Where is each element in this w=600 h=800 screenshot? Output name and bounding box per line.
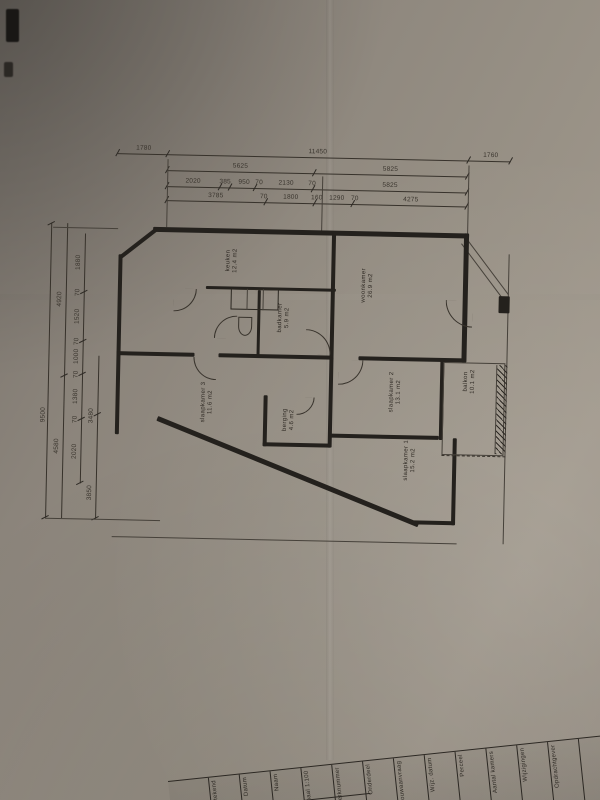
title-cell-label: Naam (273, 773, 281, 791)
dim-label: 5825 (383, 166, 398, 173)
wall (461, 233, 469, 362)
door-arc (193, 357, 216, 380)
dim-label: 2020 (71, 444, 78, 459)
title-cell-label: Bouwaanvraag (396, 760, 407, 800)
room-label-slaapkamer-3: slaapkamer 311.6 m2 (200, 382, 215, 423)
dimension-line (95, 356, 99, 519)
dimension-line (80, 233, 86, 483)
dim-label: 3785 (208, 192, 223, 199)
dim-label: 11450 (308, 148, 327, 155)
dim-label: 4920 (56, 291, 63, 306)
room-label-slaapkamer-2: slaapkamer 213.1 m2 (388, 371, 403, 412)
room-area: 12.4 m2 (232, 248, 240, 273)
dim-label: 1000 (73, 349, 80, 364)
dim-label: 385 (219, 178, 231, 185)
room-label-woonkamer: woonkamer26.9 m2 (361, 268, 376, 303)
wall (413, 520, 455, 525)
dim-label: 70 (73, 337, 80, 345)
extension-line (166, 159, 168, 227)
wall-chamfer (119, 228, 157, 259)
dim-label: 5825 (382, 182, 397, 189)
room-label-berging: berging4.6 m2 (282, 408, 296, 431)
wall (263, 442, 331, 447)
dim-label: 1290 (329, 195, 344, 202)
wall (263, 395, 268, 446)
dimension-line (45, 223, 52, 518)
extension-line (53, 227, 118, 229)
title-cell-label: Onderdeel (365, 764, 374, 795)
room-label-slaapkamer-1: slaapkamer 115.2 m2 (403, 440, 418, 481)
dim-label: 9500 (40, 407, 47, 422)
dim-label: 1520 (74, 309, 81, 324)
dim-label: 950 (238, 179, 250, 186)
dim-label: 3850 (86, 485, 93, 500)
title-cell-label: Wijz. datum (427, 757, 437, 792)
title-cell-label: Wijzigingen (519, 747, 529, 781)
dim-label: 2130 (278, 180, 293, 187)
dim-label: 70 (72, 415, 79, 423)
wc-fixture (238, 317, 252, 336)
dim-label: 1760 (483, 152, 498, 159)
wall-pier (498, 296, 509, 313)
roof-edge-line (466, 238, 509, 295)
room-area: 13.1 m2 (395, 372, 403, 413)
wall (115, 254, 123, 434)
dim-label: 1380 (72, 389, 79, 404)
dim-label: 1800 (283, 194, 298, 201)
wall-diagonal (156, 416, 419, 527)
room-area: 10.1 m2 (470, 369, 478, 394)
dim-label: 1780 (136, 145, 151, 152)
dim-label: 70 (351, 195, 359, 202)
door-arc (306, 329, 332, 355)
extension-line (112, 536, 457, 544)
door-arc (296, 397, 314, 415)
dim-label: 4580 (53, 438, 60, 453)
dim-label: 70 (308, 180, 316, 187)
room-area: 26.9 m2 (368, 268, 376, 303)
wall (116, 351, 194, 357)
door-arc (214, 315, 237, 338)
kitchen-counter (230, 289, 278, 311)
dim-label: 5625 (233, 163, 248, 170)
dim-label: 4275 (403, 196, 418, 203)
tick (508, 157, 513, 164)
floorplan-photo: 1780 11450 1760 5625 5825 2020 385 950 7… (0, 0, 600, 800)
door-arc (445, 300, 473, 328)
title-cell-label: Perceel (458, 754, 466, 777)
room-area: 15.2 m2 (410, 440, 418, 481)
tick (76, 481, 84, 485)
extension-line (45, 518, 160, 521)
door-arc (338, 360, 364, 386)
wall (153, 227, 469, 239)
dash-dot-line (441, 455, 505, 457)
room-label-balkon: balkon10.1 m2 (463, 369, 478, 394)
dim-label: 70 (74, 288, 81, 296)
wall (329, 234, 336, 360)
room-area: 4.6 m2 (289, 408, 296, 431)
title-cell-label: Datum (242, 777, 250, 797)
dim-label: 2020 (185, 178, 200, 185)
room-area: 5.9 m2 (284, 303, 292, 333)
room-label-badkamer: badkamer5.9 m2 (277, 303, 292, 333)
dim-label: 70 (260, 193, 268, 200)
dim-label: 70 (72, 370, 79, 378)
title-cell-label: Aantal kamers (489, 751, 499, 794)
extension-line (467, 165, 469, 233)
balcony-hatch (494, 365, 507, 454)
wall (331, 434, 439, 440)
door-arc (173, 288, 196, 311)
dim-label: 1880 (75, 255, 82, 270)
title-cell-label: Opdrachtgever (550, 744, 561, 788)
dimension-line (167, 170, 467, 177)
dimension-line (61, 223, 68, 518)
room-area: 11.6 m2 (207, 382, 215, 423)
dim-label: 70 (255, 179, 263, 186)
dim-label: 3480 (88, 408, 95, 423)
room-label-keuken: keuken12.4 m2 (225, 248, 240, 273)
title-cell-label: Schaal 1:100 (304, 770, 314, 800)
floorplan-drawing: 1780 11450 1760 5625 5825 2020 385 950 7… (0, 0, 600, 800)
title-cell-label: Getekend (211, 780, 220, 800)
